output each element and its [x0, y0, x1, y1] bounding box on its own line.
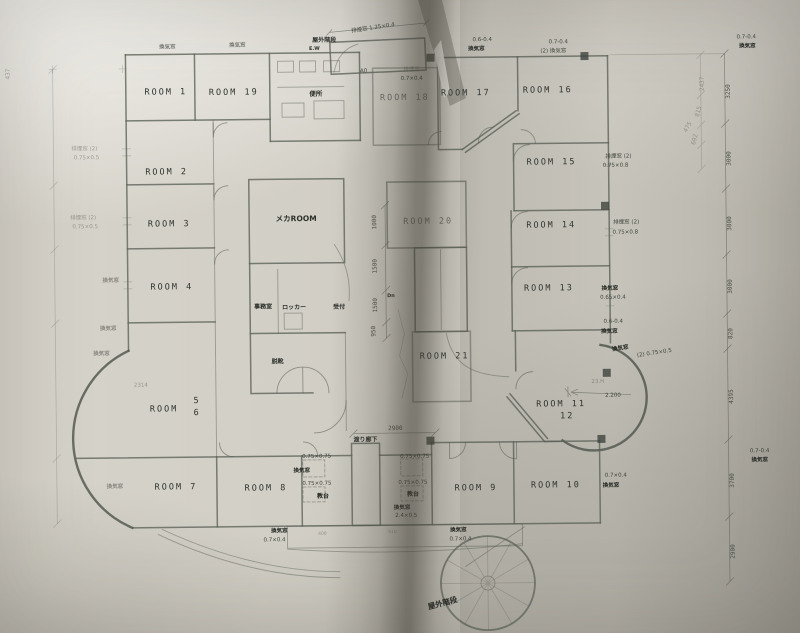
room-label: ROOM 16	[523, 85, 573, 96]
dimension-label: 3000	[726, 216, 733, 231]
window-annotation: 510	[388, 529, 397, 535]
window-annotation: 換気窓	[450, 525, 467, 533]
room-label: ROOM 11	[536, 399, 586, 410]
entrance-deck	[158, 524, 523, 580]
space-label: E.W	[309, 46, 320, 52]
room-label: ROOM	[150, 404, 179, 414]
window-annotation: 排煙窓 (2)	[613, 217, 639, 225]
reception-counter	[334, 245, 349, 301]
floor-plan-drawing: ROOM 1ROOM 19ROOM 2ROOM 3ROOM 4ROOM56ROO…	[0, 0, 800, 633]
window-annotation: 0.6-0.4	[473, 37, 493, 43]
room-label: ROOM 15	[527, 157, 577, 168]
window-annotation: 0.7-0.4	[736, 34, 756, 40]
dimension-label: 820	[727, 328, 734, 339]
window-annotation: 排煙窓 (2)	[605, 152, 631, 160]
window-annotation: 換気窓	[603, 481, 620, 489]
dimension-label: 4395	[728, 389, 735, 404]
scanned-floor-plan: ROOM 1ROOM 19ROOM 2ROOM 3ROOM 4ROOM56ROO…	[0, 0, 800, 633]
room-label: ROOM 17	[441, 88, 491, 99]
space-label: 受付	[333, 303, 345, 311]
space-label: 事務室	[254, 302, 272, 310]
window-annotation: 換気窓	[468, 44, 485, 52]
radius-callout	[565, 386, 631, 398]
connecting-corridor	[352, 443, 381, 525]
window-annotation: 換気窓	[739, 41, 756, 49]
room-label: ROOM 14	[526, 220, 576, 231]
dimension-label: 1500	[372, 259, 379, 274]
window-annotation: A0	[360, 68, 368, 74]
room-label: 6	[194, 408, 201, 418]
window-annotation: 排煙窓 (2)	[70, 213, 96, 221]
window-annotation: 0.6-0.4	[603, 319, 623, 325]
window-annotation: 換気窓	[100, 324, 117, 332]
room-label: ROOM 21	[420, 351, 470, 362]
window-annotation: 換気窓	[751, 455, 768, 463]
dimension-label: 3000	[727, 279, 734, 294]
window-annotation: 23.H	[591, 379, 604, 385]
dimension-label: 2900	[730, 544, 737, 559]
walls-left-wing	[69, 50, 600, 528]
window-annotation: (2) 換気窓	[540, 46, 567, 54]
dimension-label: 1500	[372, 298, 379, 313]
window-annotation: 換気窓	[271, 526, 288, 534]
window-annotation: 2.200	[605, 393, 621, 399]
space-label: ロッカー	[282, 304, 306, 311]
room-label: 5	[193, 396, 200, 406]
window-annotation: 換気窓	[159, 42, 176, 50]
dimension-label: 950	[370, 325, 377, 336]
dimension-label: 2437	[699, 76, 706, 91]
space-label: 教台	[316, 492, 329, 500]
window-annotation: 2314	[134, 383, 149, 389]
space-label: 教台	[406, 490, 419, 498]
window-annotation: 0.75×0.8	[612, 229, 638, 235]
space-label: 脱靴	[272, 357, 284, 365]
window-annotation: 2.4×0.5	[395, 513, 418, 519]
window-annotation: 0.75×0.5	[74, 155, 100, 161]
window-annotation: 0.7×0.4	[263, 537, 286, 543]
dimension-label: 815	[694, 105, 704, 118]
window-annotation: 0.75×0.75	[398, 480, 428, 486]
window-annotation: 排煙窓	[403, 65, 420, 73]
window-annotation: 408	[318, 531, 327, 537]
window-annotation: 0.75×0.8	[603, 163, 629, 169]
window-annotation: 0.75×0.75	[302, 481, 332, 487]
dimension-label: 437	[5, 68, 12, 79]
dimension-label: 475	[682, 120, 694, 133]
window-annotation: 0.7×0.4	[605, 473, 628, 479]
room-label: ROOM 19	[209, 87, 259, 98]
dimension-lines	[48, 50, 734, 593]
space-label: 渡り廊下	[353, 435, 377, 443]
room-label: ROOM 7	[155, 482, 198, 492]
window-annotation: 0.65×0.4	[600, 295, 626, 301]
window-annotation: 排煙窓 1.25×0.4	[351, 20, 396, 35]
door-swings	[213, 120, 539, 462]
space-label: 屋外階段	[312, 36, 336, 44]
room-label: ROOM 20	[403, 216, 453, 227]
window-annotation: 0.75×0.75	[400, 454, 430, 460]
room-label: ROOM 13	[524, 283, 574, 294]
room-label: ROOM 1	[144, 87, 187, 97]
window-annotation: 0.7-0.4	[549, 39, 569, 45]
window-annotation: 0.75×0.75	[302, 454, 332, 460]
window-annotation: 0.75×0.5	[72, 224, 98, 230]
room-label: ROOM 8	[245, 483, 288, 493]
room-label: ROOM 4	[150, 282, 193, 292]
window-annotation: 換気窓	[102, 276, 119, 284]
window-annotation: 換気窓	[394, 503, 411, 511]
dimension-label: 1000	[371, 215, 378, 230]
space-label: メカROOM	[276, 214, 317, 223]
window-annotation: 0.7×0.4	[449, 536, 472, 542]
window-annotation: 換気窓	[107, 482, 124, 490]
window-annotation: 換気窓	[93, 349, 110, 357]
window-annotation: 0.7-0.4	[750, 448, 770, 454]
room-label: ROOM 3	[148, 219, 191, 229]
window-annotation: 換気窓	[601, 327, 618, 335]
dimension-label: 3000	[725, 151, 732, 166]
fold-crease-line	[398, 310, 408, 398]
window-annotation: 排煙窓 (2)	[71, 144, 97, 152]
room-label: ROOM 2	[145, 167, 188, 177]
curved-bay-left	[72, 351, 132, 529]
column-markers	[422, 52, 611, 445]
plan-geometry	[48, 17, 734, 633]
dimension-label: 3700	[729, 473, 736, 488]
space-label: 便所	[309, 89, 323, 98]
window-annotation: 換気窓	[229, 41, 246, 49]
window-annotation: 換気窓	[611, 342, 629, 352]
window-annotation: 0.7×0.4	[401, 76, 424, 82]
room-label: 12	[560, 411, 574, 421]
room-label: ROOM 18	[380, 93, 430, 104]
space-label: Dn	[387, 293, 395, 299]
window-annotation: (2) 0.75×0.5	[637, 348, 673, 359]
dimension-label: 692	[690, 133, 700, 146]
dimension-label: 2900	[388, 425, 403, 432]
dimension-label: 3250	[725, 84, 732, 99]
window-annotation: 換気窓	[602, 284, 619, 292]
room-label: ROOM 9	[455, 483, 498, 493]
window-annotation: 換気窓	[293, 466, 310, 474]
room-label: ROOM 10	[531, 480, 581, 491]
chamfer-wall	[462, 111, 519, 153]
